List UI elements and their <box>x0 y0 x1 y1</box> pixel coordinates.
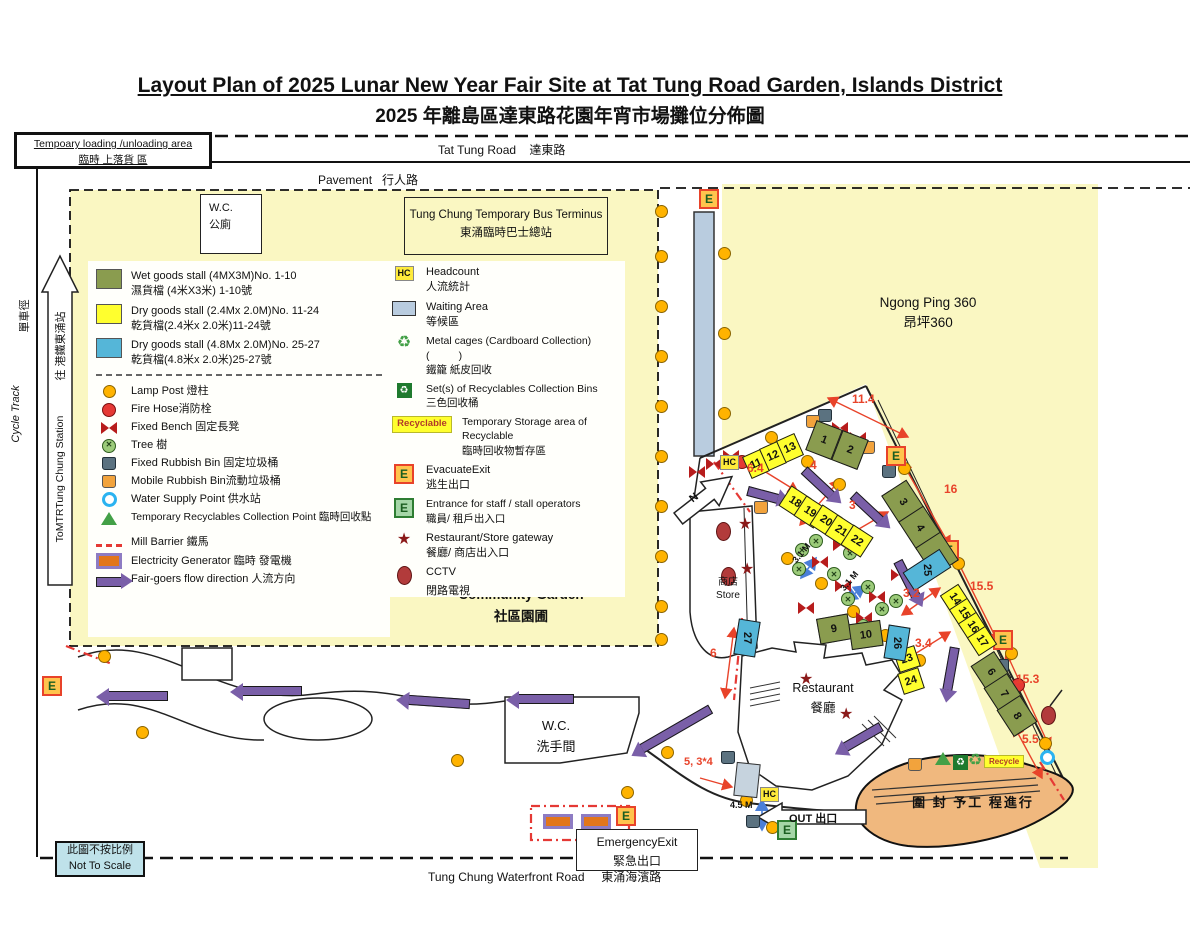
lamp-post-marker <box>655 550 668 563</box>
dry-small-stall-swatch <box>96 304 122 324</box>
recyclables-bins-icon <box>397 383 412 398</box>
out-exit-label: OUT 出口 <box>789 810 837 826</box>
legend-wet-stall-zh: 濕貨檔 (4米X3米) 1-10號 <box>131 284 296 299</box>
recycle-triangle-icon <box>397 335 411 351</box>
tat-tung-road-label: Tat Tung Road 達東路 <box>438 141 565 158</box>
stall-10: 10 <box>848 620 883 650</box>
tree-icon <box>102 439 116 453</box>
store-label: 商店Store <box>706 576 750 602</box>
page-title-zh: 2025 年離島區達東路花園年宵市場攤位分佈圖 <box>100 101 1040 128</box>
waiting-area-swatch <box>392 301 416 316</box>
tree-marker <box>875 602 889 616</box>
loading-area-label-zh: 臨時 上落貨 區 <box>17 153 209 169</box>
legend-headcount: HC Headcount人流統計 <box>391 265 619 295</box>
legend-recyclable-storage: Recyclable Temporary Storage area of Rec… <box>391 415 619 458</box>
water-supply-marker <box>1040 750 1055 765</box>
legend-flow-direction: Fair-goers flow direction 人流方向 <box>96 572 382 587</box>
electricity-generator <box>543 814 573 829</box>
stall-number: 13 <box>782 440 798 456</box>
dim-15-3: 15.3 <box>1016 672 1039 686</box>
recyclables-bins-marker <box>953 755 968 770</box>
tree-marker <box>889 594 903 608</box>
stall-number: 2 <box>845 443 855 456</box>
dim-3: 3 <box>849 498 856 512</box>
mobile-rubbish-bin-icon <box>102 475 116 488</box>
legend-mobile-bin: Mobile Rubbish Bin流動垃圾桶 <box>96 474 382 489</box>
fixed-rubbish-bin-icon <box>102 457 116 470</box>
lamp-post-marker <box>136 726 149 739</box>
legend-dry-large-stall: Dry goods stall (4.8Mx 2.0M)No. 25-27 乾貨… <box>96 338 382 368</box>
stall-number: 3 <box>896 496 909 508</box>
layout-plan-page: Layout Plan of 2025 Lunar New Year Fair … <box>0 0 1200 927</box>
dim-4-5m: 4.5 M <box>730 800 753 810</box>
generator-icon <box>96 553 122 569</box>
fixed-rubbish-bin-marker <box>721 751 735 764</box>
stall-number: 10 <box>859 628 873 642</box>
flow-direction-arrow <box>108 691 168 701</box>
stall-9: 9 <box>816 613 852 644</box>
lamp-post-marker <box>655 450 668 463</box>
lamp-post-marker <box>655 500 668 513</box>
flow-arrow-icon <box>96 577 122 587</box>
stall-number: 25 <box>921 564 934 577</box>
mill-barrier-icon <box>96 544 122 547</box>
lamp-post-marker <box>655 250 668 263</box>
lamp-post-marker <box>655 300 668 313</box>
stall-number: 6 <box>984 666 997 678</box>
cctv-marker <box>716 522 731 541</box>
loading-area-label-en: Tempoary loading /unloading area <box>17 137 209 153</box>
dim-3-2: 3.2 <box>903 586 920 600</box>
pavement-label: Pavement 行人路 <box>318 171 418 188</box>
cctv-icon <box>397 566 412 585</box>
lamp-post-marker <box>451 754 464 767</box>
legend-water-supply: Water Supply Point 供水站 <box>96 491 382 507</box>
legend-tree: Tree 樹 <box>96 438 382 453</box>
mobile-rubbish-bin-marker <box>908 758 922 771</box>
lamp-post-marker <box>1039 737 1052 750</box>
not-to-scale-box: 此圖不按比例Not To Scale <box>55 841 145 877</box>
dim-4: 4 <box>810 458 817 472</box>
bus-terminus-box: Tung Chung Temporary Bus Terminus東涌臨時巴士總… <box>404 197 608 255</box>
fixed-bench-marker <box>689 466 705 478</box>
legend-gateway: Restaurant/Store gateway餐廳/ 商店出入口 <box>391 531 619 561</box>
cycle-track-label-en: Cycle Track <box>10 369 22 459</box>
water-supply-icon <box>102 492 117 507</box>
dim-6: 6 <box>710 646 717 660</box>
wc-top-box: W.C.公廁 <box>200 194 262 254</box>
loading-area-box: Tempoary loading /unloading area 臨時 上落貨 … <box>14 132 212 169</box>
mobile-rubbish-bin-marker <box>754 501 768 514</box>
staff-entrance-icon: E <box>394 498 414 518</box>
cctv-marker <box>1041 706 1056 725</box>
evacuate-exit-marker: E <box>886 446 906 466</box>
stall-number: 12 <box>765 448 781 464</box>
lamp-post-marker <box>98 650 111 663</box>
fixed-rubbish-bin-marker <box>746 815 760 828</box>
lamp-post-icon <box>103 385 116 398</box>
evacuate-exit-marker: E <box>699 189 719 209</box>
stall-number: 4 <box>913 522 926 534</box>
ngong-ping-label: Ngong Ping 360昂坪360 <box>838 293 1018 334</box>
legend-recyclables-point: Temporary Recyclables Collection Point 臨… <box>96 510 382 524</box>
stall-number: 7 <box>997 688 1010 700</box>
fixed-rubbish-bin-marker <box>818 409 832 422</box>
recycle-tag-map: Recycle <box>984 755 1024 768</box>
lamp-post-marker <box>718 327 731 340</box>
legend-stalls-panel: Wet goods stall (4MX3M)No. 1-10 濕貨檔 (4米X… <box>88 261 390 637</box>
legend-lamp-post: Lamp Post 燈柱 <box>96 384 382 399</box>
legend-divider <box>96 374 382 376</box>
legend-symbols-panel: HC Headcount人流統計 Waiting Area等候區 Metal c… <box>385 261 625 597</box>
recycle-triangle-marker <box>968 753 982 769</box>
lamp-post-marker <box>718 407 731 420</box>
recyclables-point-icon <box>101 512 117 525</box>
legend-fixed-bench: Fixed Bench 固定長凳 <box>96 420 382 435</box>
fixed-bench-marker <box>869 591 885 603</box>
restaurant-label: Restaurant餐廳 <box>778 678 868 718</box>
cardboard-cage <box>733 762 760 798</box>
lamp-post-marker <box>718 247 731 260</box>
flow-direction-arrow <box>518 694 574 704</box>
stall-number: 27 <box>741 632 753 644</box>
recyclable-tag: Recyclable <box>392 416 452 433</box>
stall-number: 9 <box>830 623 838 636</box>
fixed-bench-marker <box>812 556 828 568</box>
stall-number: 22 <box>849 533 866 550</box>
dim-5-5: 5.5 <box>1022 732 1039 746</box>
legend-staff-entrance: E Entrance for staff / stall operators職員… <box>391 497 619 525</box>
legend-fire-hose: Fire Hose消防栓 <box>96 402 382 417</box>
legend-evacuate-exit: E EvacuateExit逃生出口 <box>391 463 619 493</box>
headcount-icon: HC <box>395 266 414 281</box>
flow-direction-arrow <box>242 686 302 696</box>
tree-marker <box>841 592 855 606</box>
lamp-post-marker <box>661 746 674 759</box>
fixed-rubbish-bin-marker <box>882 465 896 478</box>
stall-number: 8 <box>1010 710 1023 722</box>
dim-16: 16 <box>944 482 957 496</box>
recyclables-point-marker <box>935 752 951 765</box>
lamp-post-marker <box>655 205 668 218</box>
lamp-post-marker <box>655 350 668 363</box>
evacuate-exit-marker: E <box>42 676 62 696</box>
dim-15-5: 15.5 <box>970 579 993 593</box>
page-title-en: Layout Plan of 2025 Lunar New Year Fair … <box>100 74 1040 98</box>
tree-marker <box>827 567 841 581</box>
fire-hose-icon <box>102 403 116 417</box>
legend-waiting-area: Waiting Area等候區 <box>391 300 619 330</box>
evacuate-exit-marker: E <box>616 806 636 826</box>
legend-wet-stall-en: Wet goods stall (4MX3M)No. 1-10 <box>131 269 296 284</box>
lamp-post-marker <box>655 633 668 646</box>
cycle-track-label-zh: 單車徑 <box>16 281 32 351</box>
legend-recyclables-bins: Set(s) of Recyclables Collection Bins三色回… <box>391 382 619 410</box>
fixed-bench-marker <box>798 602 814 614</box>
works-area-label: 圍 封 予工 程進行 <box>898 792 1048 811</box>
dim-5-3x4: 5, 3*4 <box>684 756 713 768</box>
evacuate-exit-icon: E <box>394 464 414 484</box>
legend-dry-small-stall: Dry goods stall (2.4Mx 2.0M)No. 11-24 乾貨… <box>96 304 382 334</box>
legend-generator: Electricity Generator 臨時 發電機 <box>96 552 382 569</box>
emergency-exit-box: EmergencyExit緊急出口 <box>576 829 698 871</box>
lamp-post-marker <box>621 786 634 799</box>
dim-3-4: 3.4 <box>915 636 932 650</box>
gateway-star-icon <box>397 532 411 548</box>
electricity-generator <box>581 814 611 829</box>
stall-number: 26 <box>891 637 903 649</box>
legend-mill-barrier: Mill Barrier 鐵馬 <box>96 535 382 550</box>
gateway-star-marker <box>738 517 752 533</box>
legend-wet-stall: Wet goods stall (4MX3M)No. 1-10 濕貨檔 (4米X… <box>96 269 382 299</box>
stall-number: 24 <box>903 673 918 688</box>
headcount-marker: HC <box>720 455 739 470</box>
legend-fixed-bin: Fixed Rubbish Bin 固定垃圾桶 <box>96 456 382 471</box>
dry-large-stall-swatch <box>96 338 122 358</box>
legend-cctv: CCTV閉路電視 <box>391 565 619 599</box>
evacuate-exit-marker: E <box>993 630 1013 650</box>
stall-number: 17 <box>974 633 991 650</box>
headcount-marker: HC <box>760 787 779 802</box>
dim-6-4: 6.4 <box>747 461 764 475</box>
mtr-arrow-label-en: ToMTRTung Chung Station <box>54 394 66 564</box>
legend-metal-cages: Metal cages (Cardboard Collection)( )鐵籠 … <box>391 334 619 377</box>
wet-stall-swatch <box>96 269 122 289</box>
fixed-bench-icon <box>101 422 117 434</box>
lamp-post-marker <box>655 600 668 613</box>
stall-number: 1 <box>819 433 829 446</box>
lamp-post-marker <box>815 577 828 590</box>
dim-11-4: 11.4 <box>852 392 875 406</box>
lamp-post-marker <box>655 400 668 413</box>
tree-marker <box>792 562 806 576</box>
wc-bottom-label: W.C.洗手間 <box>516 716 596 758</box>
